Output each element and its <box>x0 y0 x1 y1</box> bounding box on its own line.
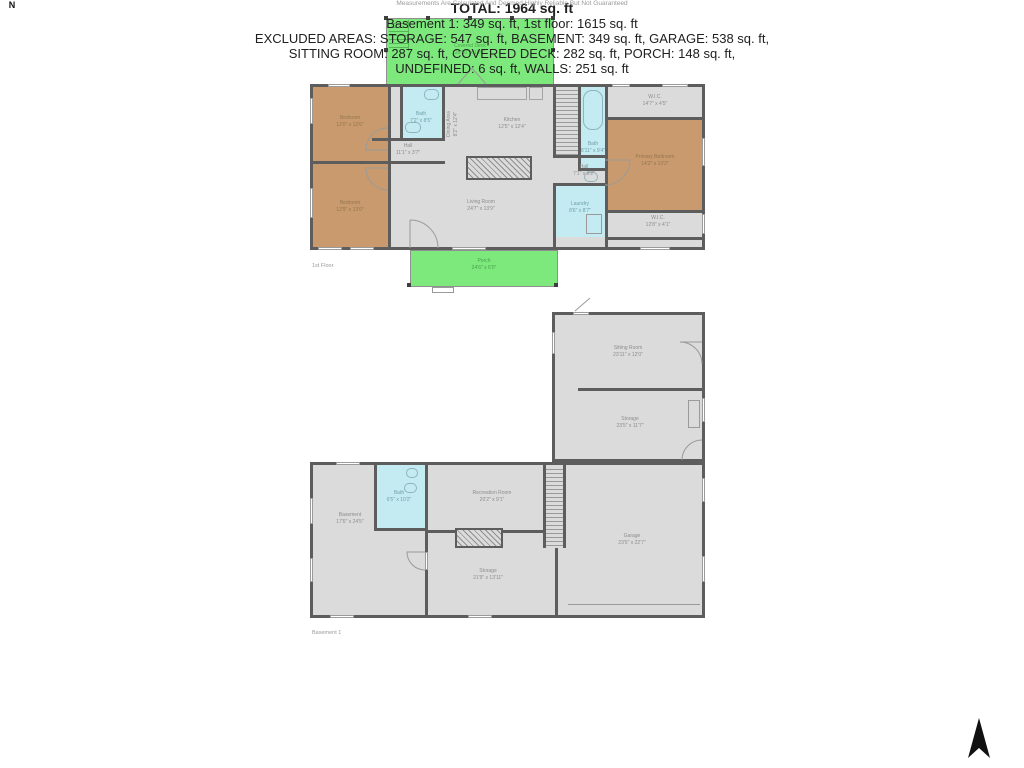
stairs-up <box>556 87 578 155</box>
window <box>336 462 360 465</box>
room-label-kitchen: Kitchen 12'5" x 12'4" <box>498 117 525 132</box>
floor-areas-line: Basement 1: 349 sq. ft, 1st floor: 1615 … <box>0 16 1024 31</box>
kitchen-appliance <box>529 87 543 100</box>
wall <box>400 86 403 141</box>
laundry-machine-icon <box>586 214 602 234</box>
wall <box>605 237 705 240</box>
door-opening <box>573 312 589 315</box>
wall <box>555 548 558 616</box>
room-label-wic-top: W.I.C. 14'7" x 4'5" <box>643 94 668 109</box>
room-label-storage-lower: Storage 21'9" x 13'11" <box>473 568 503 583</box>
wall <box>578 388 705 391</box>
window <box>552 332 555 354</box>
excluded-line-1: EXCLUDED AREAS: STORAGE: 547 sq. ft, BAS… <box>0 31 1024 46</box>
wall <box>553 183 608 186</box>
window <box>318 247 342 250</box>
room-label-hall-right: Hall 7'1" x 6'2" <box>573 164 595 179</box>
wall <box>553 183 556 248</box>
window <box>702 556 705 582</box>
disclaimer-text: Measurements Are Calculated And Deemed H… <box>0 0 1024 7</box>
window <box>702 398 705 422</box>
wall <box>442 86 445 141</box>
shelf <box>688 400 700 428</box>
room-label-dining-area: Dining Area 8'2" x 12'4" <box>446 111 461 137</box>
window <box>310 498 313 524</box>
bathtub-icon <box>583 90 603 130</box>
room-label-recreation-room: Recreation Room 20'2" x 9'1" <box>473 490 512 505</box>
window <box>330 615 354 618</box>
room-label-porch: Porch 24'6" x 6'0" <box>472 258 497 273</box>
north-arrow-icon <box>967 718 991 760</box>
room-label-living-room: Living Room 24'7" x 13'9" <box>467 199 495 214</box>
area-summary: TOTAL: 1964 sq. ft Basement 1: 349 sq. f… <box>0 0 1024 76</box>
door-diagonal <box>575 298 590 311</box>
room-label-primary-bedroom: Primary Bedroom 14'2" x 13'2" <box>636 154 675 169</box>
window <box>662 84 688 87</box>
porch-step <box>432 287 454 293</box>
room-label-laundry: Laundry 8'6" x 8'7" <box>569 201 591 216</box>
excluded-line-2: SITTING ROOM: 287 sq. ft, COVERED DECK: … <box>0 46 1024 61</box>
wall <box>372 138 445 141</box>
room-label-bath-right: Bath 8'11" x 9'4" <box>581 141 605 156</box>
basement-stairs <box>546 466 563 546</box>
room-label-garage: Garage 23'5" x 22'7" <box>618 533 645 548</box>
toilet-icon <box>406 468 418 478</box>
kitchen-counter <box>477 87 527 100</box>
room-label-bedroom-top: Bedroom 12'0" x 12'6" <box>336 115 363 130</box>
window <box>310 188 313 218</box>
room-label-storage-upper: Storage 23'5" x 11'7" <box>616 416 643 431</box>
window <box>328 84 350 87</box>
compass-north-label: N <box>0 0 24 10</box>
window <box>702 214 705 234</box>
sink-icon <box>424 89 439 100</box>
room-label-bath-left: Bath 7'2" x 8'5" <box>410 111 432 126</box>
basement-lower-body <box>310 462 705 618</box>
floorplan-page: Covered Deck 26'10" x 10'6" Bedroom 12'0… <box>0 0 1024 768</box>
wall <box>425 462 428 616</box>
room-label-wic-bottom: W.I.C. 12'8" x 4'1" <box>646 215 671 230</box>
window <box>702 478 705 502</box>
porch-post <box>554 283 558 287</box>
basement-wing-body <box>552 312 705 462</box>
window <box>310 558 313 582</box>
wall <box>374 462 377 531</box>
porch-post <box>407 283 411 287</box>
wall <box>605 117 705 120</box>
room-label-basement: Basement 17'6" x 24'5" <box>336 512 363 527</box>
room-label-sitting-room: Sitting Room 23'11" x 12'0" <box>613 345 643 360</box>
window <box>350 247 374 250</box>
stairs-hatch <box>455 528 503 548</box>
window <box>702 138 705 166</box>
wall <box>605 210 705 213</box>
basement-tag: Basement 1 <box>312 630 341 636</box>
stairs-down-hatch <box>466 156 532 180</box>
room-label-bedroom-bottom: Bedroom 12'9" x 13'0" <box>336 200 363 215</box>
window <box>640 247 670 250</box>
excluded-line-3: UNDEFINED: 6 sq. ft, WALLS: 251 sq. ft <box>0 61 1024 76</box>
window <box>612 84 630 87</box>
first-floor-tag: 1st Floor <box>312 263 333 269</box>
wall <box>553 155 608 158</box>
wall <box>388 164 391 248</box>
wall <box>310 161 445 164</box>
wall <box>388 86 391 164</box>
door-opening <box>425 552 428 570</box>
window <box>468 615 492 618</box>
wall <box>563 462 566 548</box>
wall <box>374 528 428 531</box>
room-label-basement-bath: Bath 6'5" x 10'2" <box>387 490 412 505</box>
window <box>310 98 313 124</box>
wall <box>605 86 608 248</box>
room-label-hall-left: Hall 11'1" x 3'7" <box>396 143 420 158</box>
garage-door-line <box>568 604 700 605</box>
